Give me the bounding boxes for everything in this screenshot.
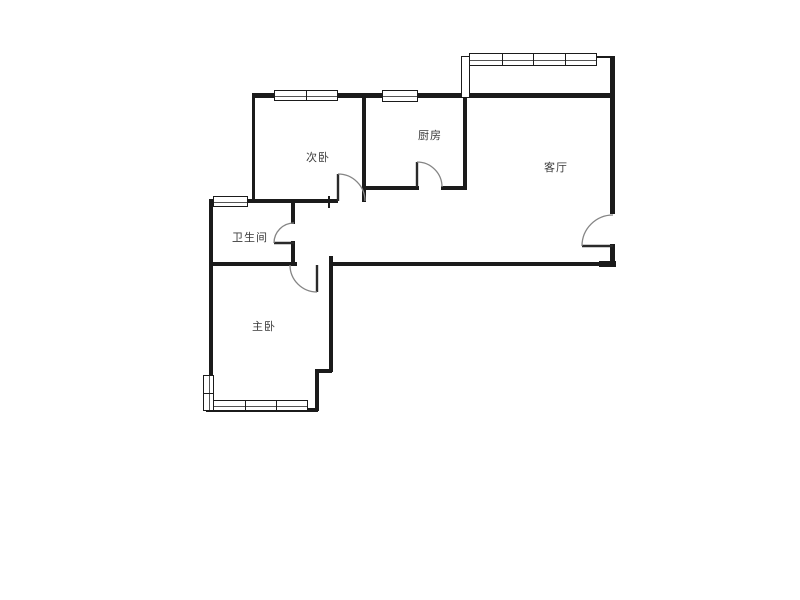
room-label-master-bedroom: 主卧 xyxy=(252,318,276,334)
kitchen-window xyxy=(382,90,418,102)
wall-segment xyxy=(209,199,213,377)
wall-segment xyxy=(330,262,616,266)
secondary-bedroom-window xyxy=(274,90,338,101)
window-pane-divider xyxy=(276,401,277,410)
room-label-living-room: 客厅 xyxy=(544,159,568,175)
room-label-bathroom: 卫生间 xyxy=(232,229,268,245)
window-mid-line xyxy=(383,96,417,97)
entrance-door-arc xyxy=(582,215,613,246)
room-label-kitchen: 厨房 xyxy=(418,127,442,143)
bathroom-door-arc xyxy=(274,223,294,243)
master-bedroom-bottom-window xyxy=(213,400,308,411)
balcony-side-panel xyxy=(461,56,470,98)
window-mid-line xyxy=(214,202,247,203)
wall-segment xyxy=(610,56,615,214)
wall-segment xyxy=(315,369,319,411)
wall-segment xyxy=(291,241,295,266)
secondary-bedroom-door-arc xyxy=(338,174,365,201)
window-pane-divider xyxy=(565,54,566,65)
floorplan-canvas: 次卧 厨房 客厅 卫生间 主卧 xyxy=(0,0,800,600)
wall-segment xyxy=(291,199,295,224)
wall-segment xyxy=(364,186,419,190)
wall-segment xyxy=(441,186,467,190)
bathroom-window xyxy=(213,196,248,207)
wall-segment xyxy=(252,95,255,202)
room-label-secondary-bedroom: 次卧 xyxy=(306,149,330,165)
wall-segment xyxy=(463,95,467,190)
wall-segment xyxy=(209,262,297,266)
wall-segment xyxy=(328,196,330,208)
window-pane-divider xyxy=(306,91,307,100)
window-pane-divider xyxy=(245,401,246,410)
kitchen-door-arc xyxy=(417,162,442,187)
balcony-window xyxy=(469,53,597,66)
window-pane-divider xyxy=(502,54,503,65)
master-bedroom-door-arc xyxy=(290,265,317,292)
window-pane-divider xyxy=(533,54,534,65)
wall-segment xyxy=(329,256,333,372)
wall-segment xyxy=(599,261,616,267)
window-mid-line xyxy=(214,406,307,407)
window-pane-divider xyxy=(204,393,213,394)
